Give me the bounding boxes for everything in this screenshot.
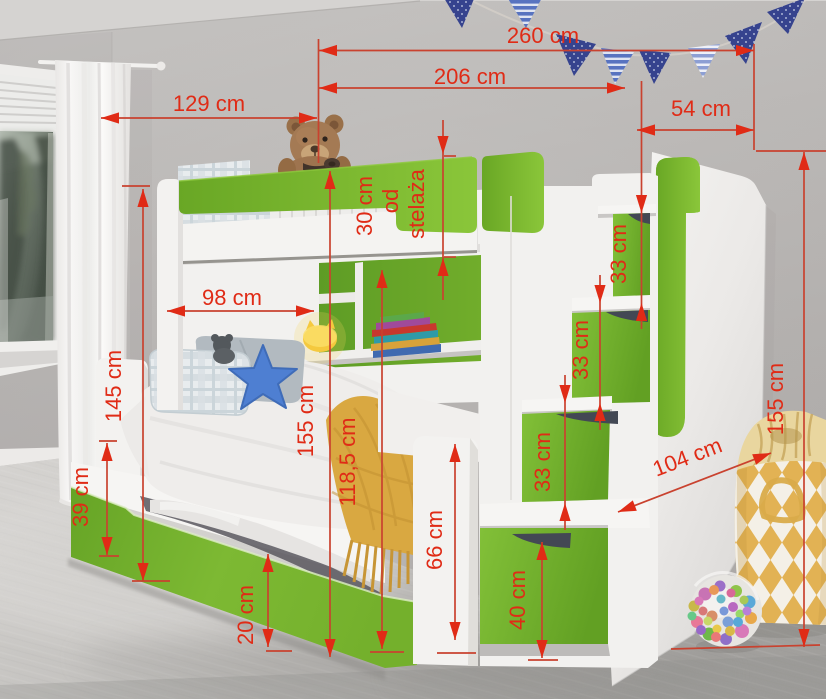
svg-text:33 cm: 33 cm [606,224,631,284]
svg-text:206 cm: 206 cm [434,64,506,89]
svg-text:66 cm: 66 cm [422,510,447,570]
svg-text:260 cm: 260 cm [507,23,579,48]
svg-text:118,5 cm: 118,5 cm [335,418,360,507]
svg-text:40 cm: 40 cm [505,570,530,630]
svg-text:20 cm: 20 cm [233,585,258,645]
svg-text:155 cm: 155 cm [763,363,788,435]
svg-text:39 cm: 39 cm [68,467,93,527]
svg-text:33 cm: 33 cm [568,320,593,380]
svg-text:33 cm: 33 cm [530,432,555,492]
svg-text:155 cm: 155 cm [293,385,318,457]
svg-text:145 cm: 145 cm [101,350,126,422]
svg-text:30 cm: 30 cm [352,176,377,236]
svg-text:98 cm: 98 cm [202,285,262,310]
svg-text:od: od [378,189,403,213]
svg-text:54 cm: 54 cm [671,96,731,121]
svg-text:stelaża: stelaża [404,168,429,238]
svg-text:129 cm: 129 cm [173,91,245,116]
